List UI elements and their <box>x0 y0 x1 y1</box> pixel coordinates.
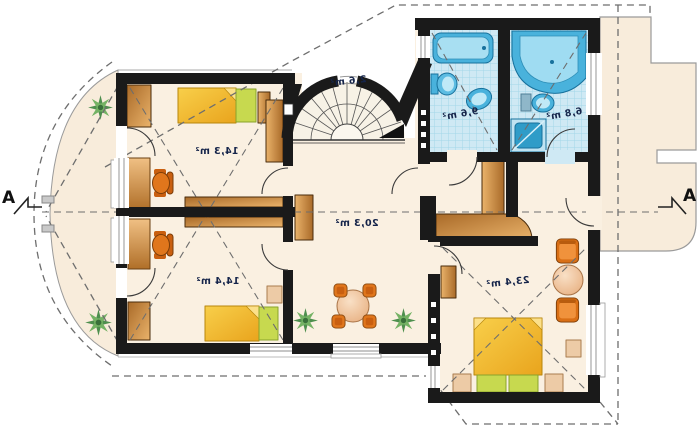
dining-chair <box>363 315 376 328</box>
washbasin-counter <box>521 94 531 111</box>
dining-chair <box>332 315 345 328</box>
window <box>333 344 379 354</box>
nightstand <box>545 374 563 392</box>
window <box>426 366 440 388</box>
door-gap <box>416 164 432 196</box>
toilet-bowl-inner <box>442 77 454 92</box>
door-gap <box>116 268 127 298</box>
wall-dividing <box>127 207 295 217</box>
wall-hall-west-2 <box>283 138 293 168</box>
office-chair <box>153 231 174 259</box>
room-label-hall: 20,3 m² <box>322 218 392 229</box>
door-gap <box>283 166 293 196</box>
coffee-table <box>553 265 583 295</box>
room-label-bedroom-bottom-left: 14,4 m² <box>186 276 250 287</box>
wall-hall-west-3 <box>283 195 293 243</box>
wardrobe <box>441 266 456 298</box>
floor-plan-canvas: 14,3 m² 14,4 m² 20,3 m² 2,6 m² 9,6 m² 6,… <box>0 0 700 429</box>
dining-chair <box>334 284 347 297</box>
section-cut-mark <box>42 225 54 232</box>
bed-double <box>474 318 542 375</box>
armchair <box>556 298 578 322</box>
wall-lobby-divider <box>506 155 518 217</box>
door-gap <box>116 126 127 158</box>
window <box>416 36 430 58</box>
washbasin-inner <box>536 98 550 109</box>
wardrobe <box>482 158 504 214</box>
window-sill <box>331 354 381 358</box>
door-gap <box>545 150 575 164</box>
window <box>114 216 129 264</box>
window <box>250 344 292 354</box>
nightstand <box>566 340 581 357</box>
desk <box>128 158 150 210</box>
pillow <box>236 89 256 122</box>
pillow <box>509 375 538 392</box>
wall-lobby-stub <box>420 196 436 240</box>
wall-niche <box>284 104 293 115</box>
room-label-bedroom-top-left: 14,3 m² <box>185 146 249 157</box>
armchair <box>556 239 578 263</box>
corner-bathtub-drain <box>550 60 554 64</box>
section-letter-left: A <box>2 190 15 207</box>
window <box>114 158 129 208</box>
window <box>586 305 602 375</box>
wall-south-right <box>428 392 600 403</box>
wall-bathrooms-divider <box>498 28 510 152</box>
wardrobe <box>127 85 151 127</box>
desk <box>128 219 150 269</box>
section-letter-right: A <box>683 188 696 205</box>
dining-chair <box>363 284 376 297</box>
pillow <box>477 375 506 392</box>
wall-bedroom-right-north <box>428 236 538 246</box>
wall-west <box>116 73 127 354</box>
office-chair <box>153 169 174 197</box>
pillow <box>259 307 278 340</box>
bed-single-1 <box>178 88 236 123</box>
bathtub-drain <box>482 46 486 50</box>
wardrobe <box>128 302 150 340</box>
door-gap <box>283 242 293 270</box>
floor-plan-drawing <box>0 0 700 429</box>
wardrobe <box>295 195 313 240</box>
section-zigzag-left <box>14 198 42 214</box>
nightstand <box>267 286 282 303</box>
door-gap <box>586 196 602 230</box>
wall-north-left <box>116 73 295 84</box>
wall-hall-west-4 <box>283 269 293 354</box>
terrace-floor <box>600 17 696 251</box>
door-gap <box>447 150 477 164</box>
section-cut-mark <box>42 196 54 203</box>
wardrobe <box>266 100 283 162</box>
